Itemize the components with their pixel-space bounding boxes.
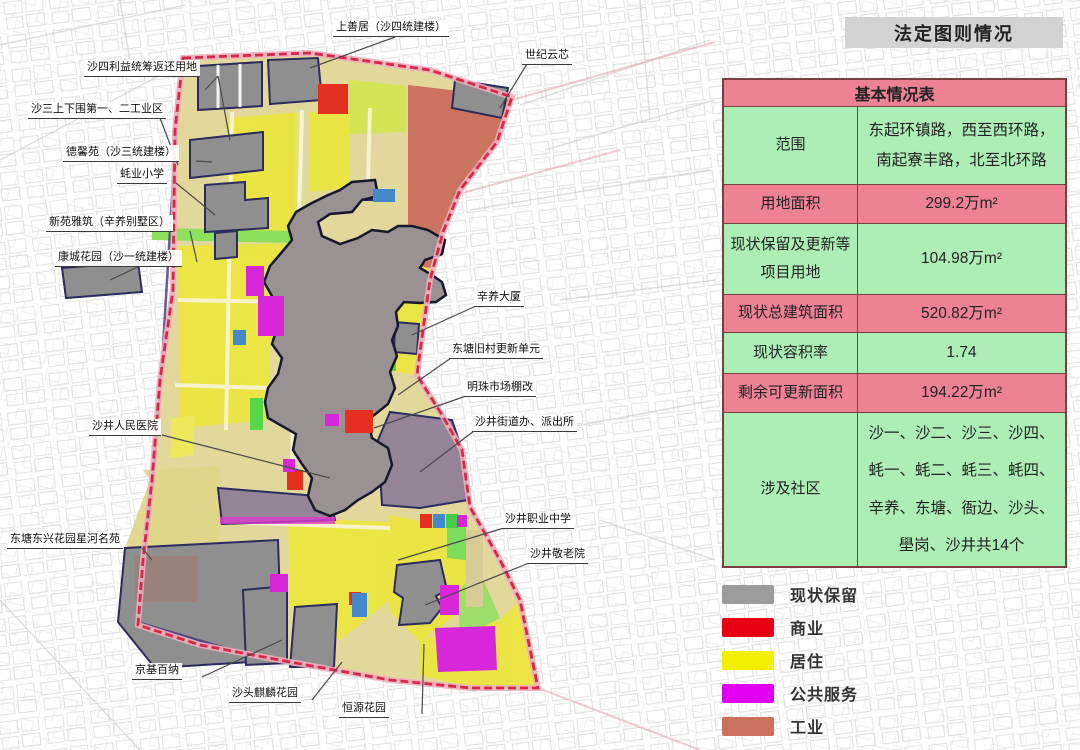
industrial-swatch — [722, 717, 774, 736]
legend-item-industrial: 工业 — [722, 716, 858, 736]
map-label-shasan-industrial: 沙三上下围第一、二工业区 — [28, 102, 166, 119]
page-title: 法定图则情况 — [845, 17, 1063, 48]
map-label-shangshanju: 上善居（沙四统建楼） — [333, 20, 449, 37]
map-label-dongtang-renewal: 东塘旧村更新单元 — [449, 342, 543, 359]
legend-label: 公共服务 — [790, 681, 858, 705]
table-header: 基本情况表 — [724, 80, 1065, 106]
row-value: 104.98万m² — [858, 224, 1065, 294]
row-value: 299.2万m² — [858, 185, 1065, 223]
table-row-total-floor-area: 现状总建筑面积 520.82万m² — [724, 294, 1065, 332]
map-label-shajing-vocational: 沙井职业中学 — [502, 512, 574, 529]
map-label-hengyuan-garden: 恒源花园 — [339, 701, 389, 718]
row-label: 范围 — [724, 107, 858, 184]
map-label-haoye-school: 蚝业小学 — [117, 167, 167, 184]
table-row-retained-projects: 现状保留及更新等项目用地 104.98万m² — [724, 223, 1065, 294]
row-label: 用地面积 — [724, 185, 858, 223]
legend-label: 商业 — [790, 615, 824, 639]
table-row-communities: 涉及社区 沙一、沙二、沙三、沙四、蚝一、蚝二、蚝三、蚝四、辛养、东塘、衙边、沙头… — [724, 412, 1065, 566]
map-label-shajing-office: 沙井街道办、派出所 — [472, 415, 577, 432]
retained-swatch — [722, 585, 774, 604]
legend-label: 现状保留 — [790, 582, 858, 606]
table-row-plot-ratio: 现状容积率 1.74 — [724, 332, 1065, 373]
map-legend: 现状保留 商业 居住 公共服务 工业 — [722, 584, 858, 749]
map-label-xinyuan-villa: 新苑雅筑（辛养别墅区） — [46, 215, 173, 232]
legend-item-commercial: 商业 — [722, 617, 858, 637]
table-row-scope: 范围 东起环镇路，西至西环路，南起寮丰路，北至北环路 — [724, 106, 1065, 184]
map-label-kangcheng-garden: 康城花园（沙一统建楼） — [55, 250, 182, 267]
legend-item-residential: 居住 — [722, 650, 858, 670]
map-label-century-cloud: 世纪云芯 — [522, 48, 572, 65]
table-row-land-area: 用地面积 299.2万m² — [724, 184, 1065, 223]
row-value: 1.74 — [858, 333, 1065, 373]
map-label-jingji-baina: 京基百纳 — [132, 663, 182, 680]
planning-map-page: 上善居（沙四统建楼） 沙四利益统筹返还用地 世纪云芯 沙三上下围第一、二工业区 … — [0, 0, 1080, 750]
residential-swatch — [722, 651, 774, 670]
row-value: 194.22万m² — [858, 374, 1065, 412]
basic-info-table: 基本情况表 范围 东起环镇路，西至西环路，南起寮丰路，北至北环路 用地面积 29… — [722, 78, 1067, 568]
row-value: 520.82万m² — [858, 295, 1065, 332]
map-label-shasi-return-land: 沙四利益统筹返还用地 — [84, 60, 200, 77]
row-value: 东起环镇路，西至西环路，南起寮丰路，北至北环路 — [858, 107, 1065, 184]
legend-item-retained: 现状保留 — [722, 584, 858, 604]
row-label: 涉及社区 — [724, 413, 858, 566]
map-label-dexinyuan: 德馨苑（沙三统建楼） — [63, 145, 179, 162]
map-label-shajing-hospital: 沙井人民医院 — [89, 419, 161, 436]
commercial-swatch — [722, 618, 774, 637]
table-row-renewable-area: 剩余可更新面积 194.22万m² — [724, 373, 1065, 412]
legend-item-public-service: 公共服务 — [722, 683, 858, 703]
row-label: 现状总建筑面积 — [724, 295, 858, 332]
row-label: 现状保留及更新等项目用地 — [724, 224, 858, 294]
row-value: 沙一、沙二、沙三、沙四、蚝一、蚝二、蚝三、蚝四、辛养、东塘、衙边、沙头、壆岗、沙… — [858, 413, 1065, 566]
map-label-shatou-kirin: 沙头麒麟花园 — [229, 686, 301, 703]
map-label-mingzhu-market: 明珠市场棚改 — [464, 380, 536, 397]
row-label: 剩余可更新面积 — [724, 374, 858, 412]
map-label-xinyang-tower: 辛养大厦 — [474, 290, 524, 307]
map-label-dongtang-xinghe: 东塘东兴花园星河名苑 — [7, 532, 123, 549]
row-label: 现状容积率 — [724, 333, 858, 373]
map-label-shajing-nursing: 沙井敬老院 — [527, 547, 588, 564]
legend-label: 工业 — [790, 714, 824, 738]
public-service-swatch — [722, 684, 774, 703]
legend-label: 居住 — [790, 648, 824, 672]
